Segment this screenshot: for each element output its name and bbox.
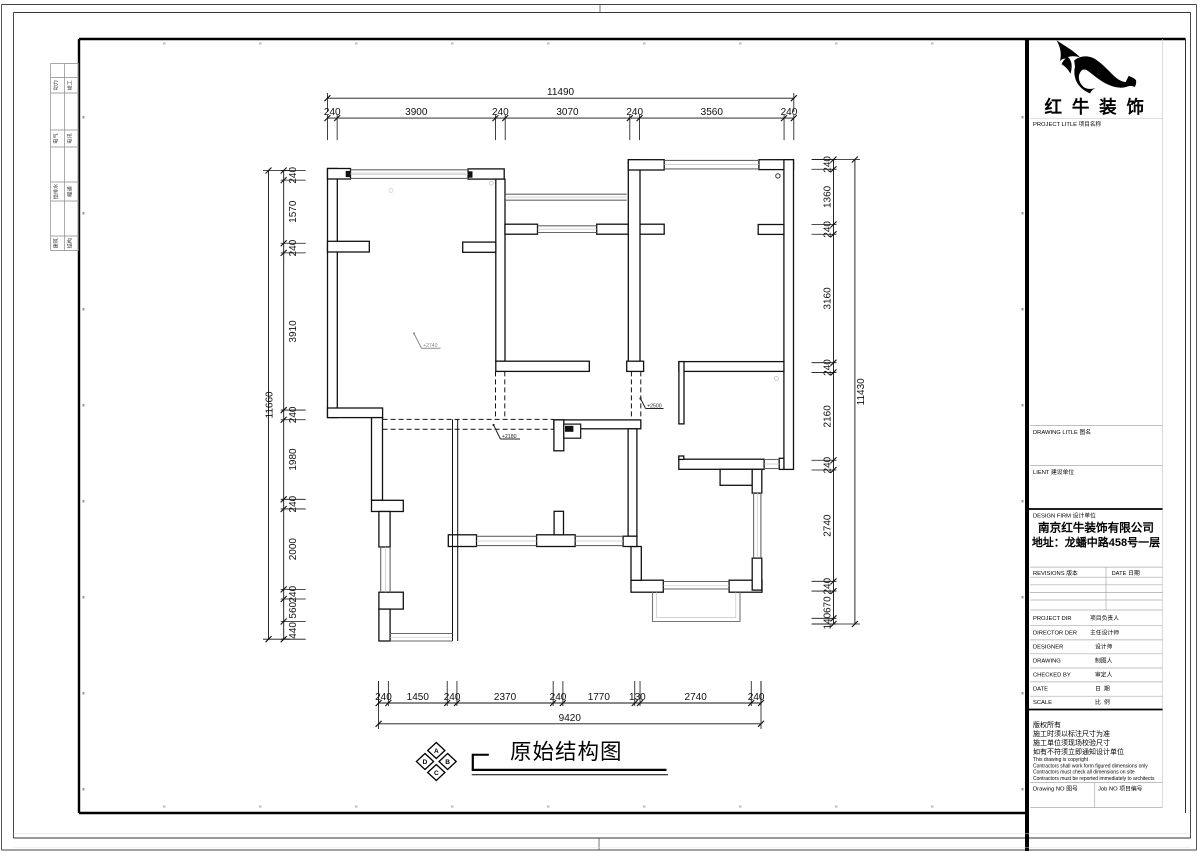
svg-text:2160: 2160 — [823, 405, 834, 428]
svg-text:240: 240 — [823, 359, 834, 376]
svg-text:动力: 动力 — [52, 80, 60, 90]
svg-text:SCALE: SCALE — [1033, 700, 1052, 706]
svg-text:A: A — [434, 748, 439, 755]
svg-text:240: 240 — [823, 156, 834, 173]
svg-text:240: 240 — [550, 692, 567, 703]
svg-text:Job NO 项目编号: Job NO 项目编号 — [1098, 785, 1143, 793]
svg-text:LIENT 建设单位: LIENT 建设单位 — [1033, 468, 1074, 476]
svg-text:1770: 1770 — [588, 692, 611, 703]
svg-text:240: 240 — [781, 107, 798, 118]
svg-text:REVISIONS 版本: REVISIONS 版本 — [1033, 569, 1078, 577]
svg-text:1360: 1360 — [823, 185, 834, 208]
svg-text:240: 240 — [375, 692, 392, 703]
svg-text:Contractors shall work form fi: Contractors shall work form figured dime… — [1033, 763, 1148, 769]
svg-text:DRAWING: DRAWING — [1033, 659, 1061, 665]
svg-text:主任设计师: 主任设计师 — [1090, 628, 1119, 636]
svg-text:DATE: DATE — [1033, 687, 1048, 693]
svg-text:240: 240 — [324, 107, 341, 118]
svg-text:DRAWING LITLE 图名: DRAWING LITLE 图名 — [1033, 428, 1091, 436]
svg-text:Contractors must be reported i: Contractors must be reported immediately… — [1033, 776, 1155, 782]
svg-text:PROJECT LITLE 项目名称: PROJECT LITLE 项目名称 — [1033, 120, 1101, 128]
svg-text:2370: 2370 — [494, 692, 517, 703]
svg-text:红 牛 装 饰: 红 牛 装 饰 — [1044, 97, 1146, 117]
svg-text:2740: 2740 — [823, 514, 834, 537]
svg-text:1450: 1450 — [407, 692, 430, 703]
svg-text:3070: 3070 — [556, 107, 579, 118]
svg-text:结构: 结构 — [66, 238, 74, 248]
svg-text:This drawing is copyright: This drawing is copyright — [1033, 757, 1089, 763]
svg-text:电讯: 电讯 — [66, 133, 74, 144]
svg-text:240: 240 — [823, 456, 834, 473]
svg-text:DESIGN FIRM 设计单位: DESIGN FIRM 设计单位 — [1033, 512, 1096, 520]
svg-text:给排水: 给排水 — [52, 183, 60, 199]
svg-text:地址：龙蟠中路458号一层: 地址：龙蟠中路458号一层 — [1032, 535, 1160, 549]
svg-text:+2500: +2500 — [647, 403, 662, 409]
svg-text:设计师: 设计师 — [1095, 642, 1113, 650]
svg-text:原始结构图: 原始结构图 — [510, 740, 623, 764]
svg-text:240: 240 — [748, 692, 765, 703]
svg-text:3910: 3910 — [288, 320, 299, 343]
svg-text:施工时须以标注尺寸为准: 施工时须以标注尺寸为准 — [1033, 729, 1110, 738]
svg-text:D: D — [423, 759, 428, 766]
svg-text:南京红牛装饰有限公司: 南京红牛装饰有限公司 — [1038, 521, 1154, 535]
svg-text:PROJECT DIR: PROJECT DIR — [1033, 616, 1072, 622]
svg-text:制图人: 制图人 — [1095, 657, 1113, 665]
svg-text:+2740: +2740 — [423, 343, 438, 349]
svg-text:1570: 1570 — [288, 200, 299, 223]
svg-text:施工单位须现场校验尺寸: 施工单位须现场校验尺寸 — [1033, 738, 1110, 747]
svg-text:240: 240 — [492, 107, 509, 118]
svg-text:240: 240 — [823, 577, 834, 594]
svg-text:140: 140 — [823, 612, 834, 629]
svg-text:项目负责人: 项目负责人 — [1090, 614, 1119, 622]
svg-text:11430: 11430 — [856, 378, 867, 406]
svg-text:240: 240 — [288, 585, 299, 602]
svg-text:DIRECTOR DER: DIRECTOR DER — [1033, 630, 1077, 636]
svg-text:240: 240 — [288, 239, 299, 256]
svg-text:竣工: 竣工 — [66, 80, 74, 90]
svg-text:3160: 3160 — [823, 287, 834, 310]
svg-text:3900: 3900 — [405, 107, 428, 118]
svg-text:DATE 日期: DATE 日期 — [1112, 570, 1140, 577]
svg-text:440: 440 — [288, 622, 299, 639]
svg-text:670: 670 — [823, 596, 834, 613]
svg-text:560: 560 — [288, 601, 299, 618]
svg-text:9420: 9420 — [559, 713, 582, 724]
svg-text:2740: 2740 — [685, 692, 708, 703]
svg-text:2000: 2000 — [288, 538, 299, 561]
svg-text:B: B — [445, 759, 450, 766]
svg-text:C: C — [434, 770, 439, 777]
svg-text:如有不符须立即通知设计单位: 如有不符须立即通知设计单位 — [1033, 747, 1124, 756]
svg-text:240: 240 — [823, 221, 834, 238]
svg-text:日 期: 日 期 — [1095, 686, 1110, 693]
svg-text:240: 240 — [288, 495, 299, 512]
svg-text:建筑: 建筑 — [52, 237, 60, 248]
svg-text:审定人: 审定人 — [1095, 670, 1113, 678]
svg-text:1980: 1980 — [288, 448, 299, 471]
svg-text:+2180: +2180 — [502, 434, 517, 440]
svg-text:暖通: 暖通 — [66, 186, 74, 197]
svg-text:DESIGNER: DESIGNER — [1033, 644, 1063, 650]
svg-text:240: 240 — [444, 692, 461, 703]
svg-text:3560: 3560 — [701, 107, 724, 118]
svg-text:240: 240 — [288, 406, 299, 423]
svg-text:电气: 电气 — [52, 133, 60, 143]
svg-text:240: 240 — [288, 167, 299, 184]
svg-text:11490: 11490 — [547, 87, 575, 98]
svg-text:Contractors must check all dim: Contractors must check all dimensions on… — [1033, 770, 1135, 776]
svg-text:CHECKED BY: CHECKED BY — [1033, 672, 1071, 678]
svg-text:版权所有: 版权所有 — [1033, 720, 1061, 729]
svg-text:Drawing NO 图号: Drawing NO 图号 — [1033, 785, 1078, 793]
svg-text:130: 130 — [629, 692, 646, 703]
svg-text:11660: 11660 — [265, 391, 276, 419]
svg-text:240: 240 — [626, 107, 643, 118]
svg-text:比 例: 比 例 — [1095, 698, 1110, 706]
